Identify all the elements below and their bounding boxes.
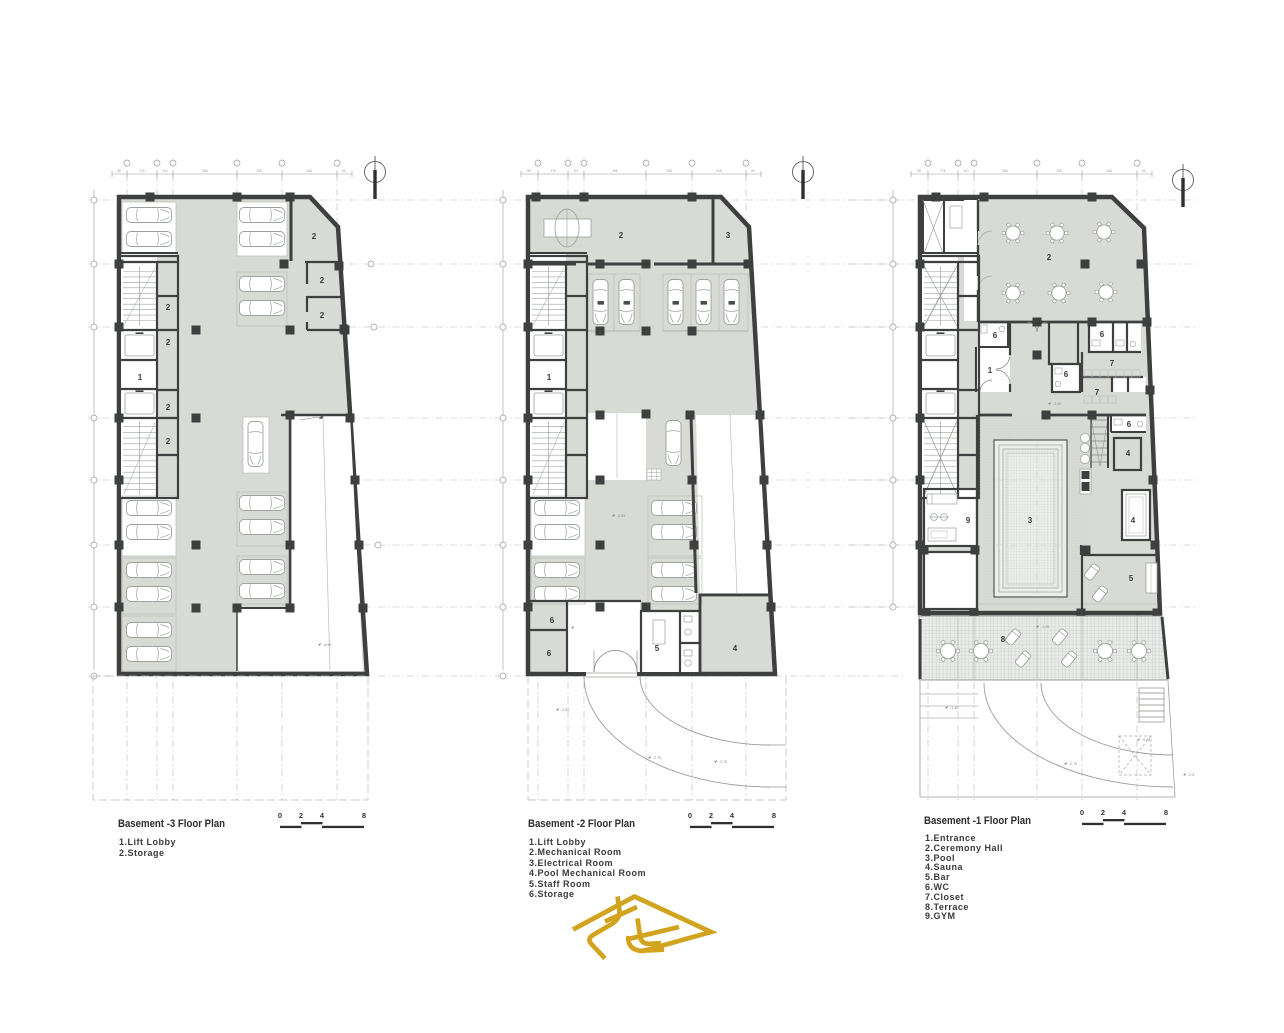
svg-text:4: 4 <box>1131 516 1136 525</box>
svg-text:6: 6 <box>1064 370 1069 379</box>
svg-text:-0.95: -0.95 <box>1142 738 1150 742</box>
svg-text:6.WC: 6.WC <box>925 882 950 892</box>
svg-text:4.Sauna: 4.Sauna <box>925 862 964 872</box>
svg-text:276: 276 <box>550 169 556 173</box>
svg-text:2: 2 <box>320 311 325 320</box>
svg-text:366: 366 <box>202 169 208 173</box>
svg-text:2.Mechanical Room: 2.Mechanical Room <box>529 847 622 857</box>
svg-text:-0.5: -0.5 <box>1188 773 1194 777</box>
svg-text:2: 2 <box>1047 253 1052 262</box>
svg-text:6.Storage: 6.Storage <box>529 889 575 899</box>
svg-text:2: 2 <box>166 303 171 312</box>
svg-text:448: 448 <box>716 169 722 173</box>
svg-text:1: 1 <box>988 366 993 375</box>
svg-text:1.Lift Lobby: 1.Lift Lobby <box>119 837 176 847</box>
svg-text:6: 6 <box>547 649 552 658</box>
svg-text:1: 1 <box>138 373 143 382</box>
svg-text:3: 3 <box>1028 516 1033 525</box>
svg-text:-1.45: -1.45 <box>950 706 958 710</box>
svg-text:1.Entrance: 1.Entrance <box>925 833 976 843</box>
svg-text:60: 60 <box>1142 169 1146 173</box>
svg-text:7: 7 <box>1110 359 1115 368</box>
svg-text:9: 9 <box>966 516 971 525</box>
svg-text:6: 6 <box>1127 420 1132 429</box>
svg-text:6: 6 <box>993 331 998 340</box>
svg-text:3: 3 <box>726 231 731 240</box>
svg-text:Basement -1 Floor Plan: Basement -1 Floor Plan <box>924 815 1031 827</box>
svg-text:-2.70: -2.70 <box>719 760 727 764</box>
svg-text:366: 366 <box>612 169 618 173</box>
svg-text:88: 88 <box>527 169 531 173</box>
svg-text:2: 2 <box>166 437 171 446</box>
svg-text:6: 6 <box>1100 330 1105 339</box>
svg-text:-1.45: -1.45 <box>1041 625 1049 629</box>
svg-text:-8.55: -8.55 <box>323 643 331 647</box>
svg-text:7: 7 <box>1095 388 1100 397</box>
svg-text:448: 448 <box>1106 169 1112 173</box>
svg-text:348: 348 <box>1056 169 1062 173</box>
svg-text:5: 5 <box>1129 574 1134 583</box>
svg-text:8: 8 <box>1001 635 1006 644</box>
svg-text:5.Staff Room: 5.Staff Room <box>529 879 591 889</box>
svg-text:7.Closet: 7.Closet <box>925 892 964 902</box>
svg-text:Basement -3 Floor Plan: Basement -3 Floor Plan <box>118 818 225 830</box>
svg-text:4: 4 <box>1126 449 1131 458</box>
svg-text:5.Bar: 5.Bar <box>925 872 950 882</box>
svg-text:-3.40: -3.40 <box>1053 402 1061 406</box>
svg-text:276: 276 <box>139 169 145 173</box>
svg-text:110: 110 <box>573 169 578 173</box>
svg-text:60: 60 <box>342 169 346 173</box>
svg-text:Basement -2 Floor Plan: Basement -2 Floor Plan <box>528 818 635 830</box>
svg-text:348: 348 <box>256 169 262 173</box>
svg-text:1.Lift Lobby: 1.Lift Lobby <box>529 837 586 847</box>
svg-text:1: 1 <box>547 373 552 382</box>
svg-text:-0.75: -0.75 <box>1069 762 1077 766</box>
svg-text:348: 348 <box>666 169 672 173</box>
svg-text:4: 4 <box>733 644 738 653</box>
svg-text:110: 110 <box>162 169 167 173</box>
svg-text:276: 276 <box>940 169 946 173</box>
svg-text:4.Pool Mechanical Room: 4.Pool Mechanical Room <box>529 868 646 878</box>
svg-text:6: 6 <box>550 616 555 625</box>
svg-text:5: 5 <box>655 644 660 653</box>
svg-text:-2.70: -2.70 <box>653 756 661 760</box>
svg-text:3.Electrical Room: 3.Electrical Room <box>529 858 613 868</box>
svg-text:2.Ceremony Hall: 2.Ceremony Hall <box>925 843 1003 853</box>
svg-text:9.GYM: 9.GYM <box>925 911 956 921</box>
svg-text:366: 366 <box>1002 169 1008 173</box>
svg-text:110: 110 <box>963 169 968 173</box>
svg-text:60: 60 <box>751 169 755 173</box>
svg-text:2: 2 <box>166 403 171 412</box>
svg-text:2: 2 <box>619 231 624 240</box>
svg-text:2: 2 <box>312 232 317 241</box>
svg-text:2: 2 <box>320 276 325 285</box>
svg-text:448: 448 <box>306 169 312 173</box>
svg-text:-2.85: -2.85 <box>561 708 569 712</box>
svg-text:-5.85: -5.85 <box>617 514 625 518</box>
svg-text:88: 88 <box>917 169 921 173</box>
svg-text:2.Storage: 2.Storage <box>119 848 165 858</box>
svg-text:2: 2 <box>166 338 171 347</box>
svg-text:88: 88 <box>117 169 121 173</box>
